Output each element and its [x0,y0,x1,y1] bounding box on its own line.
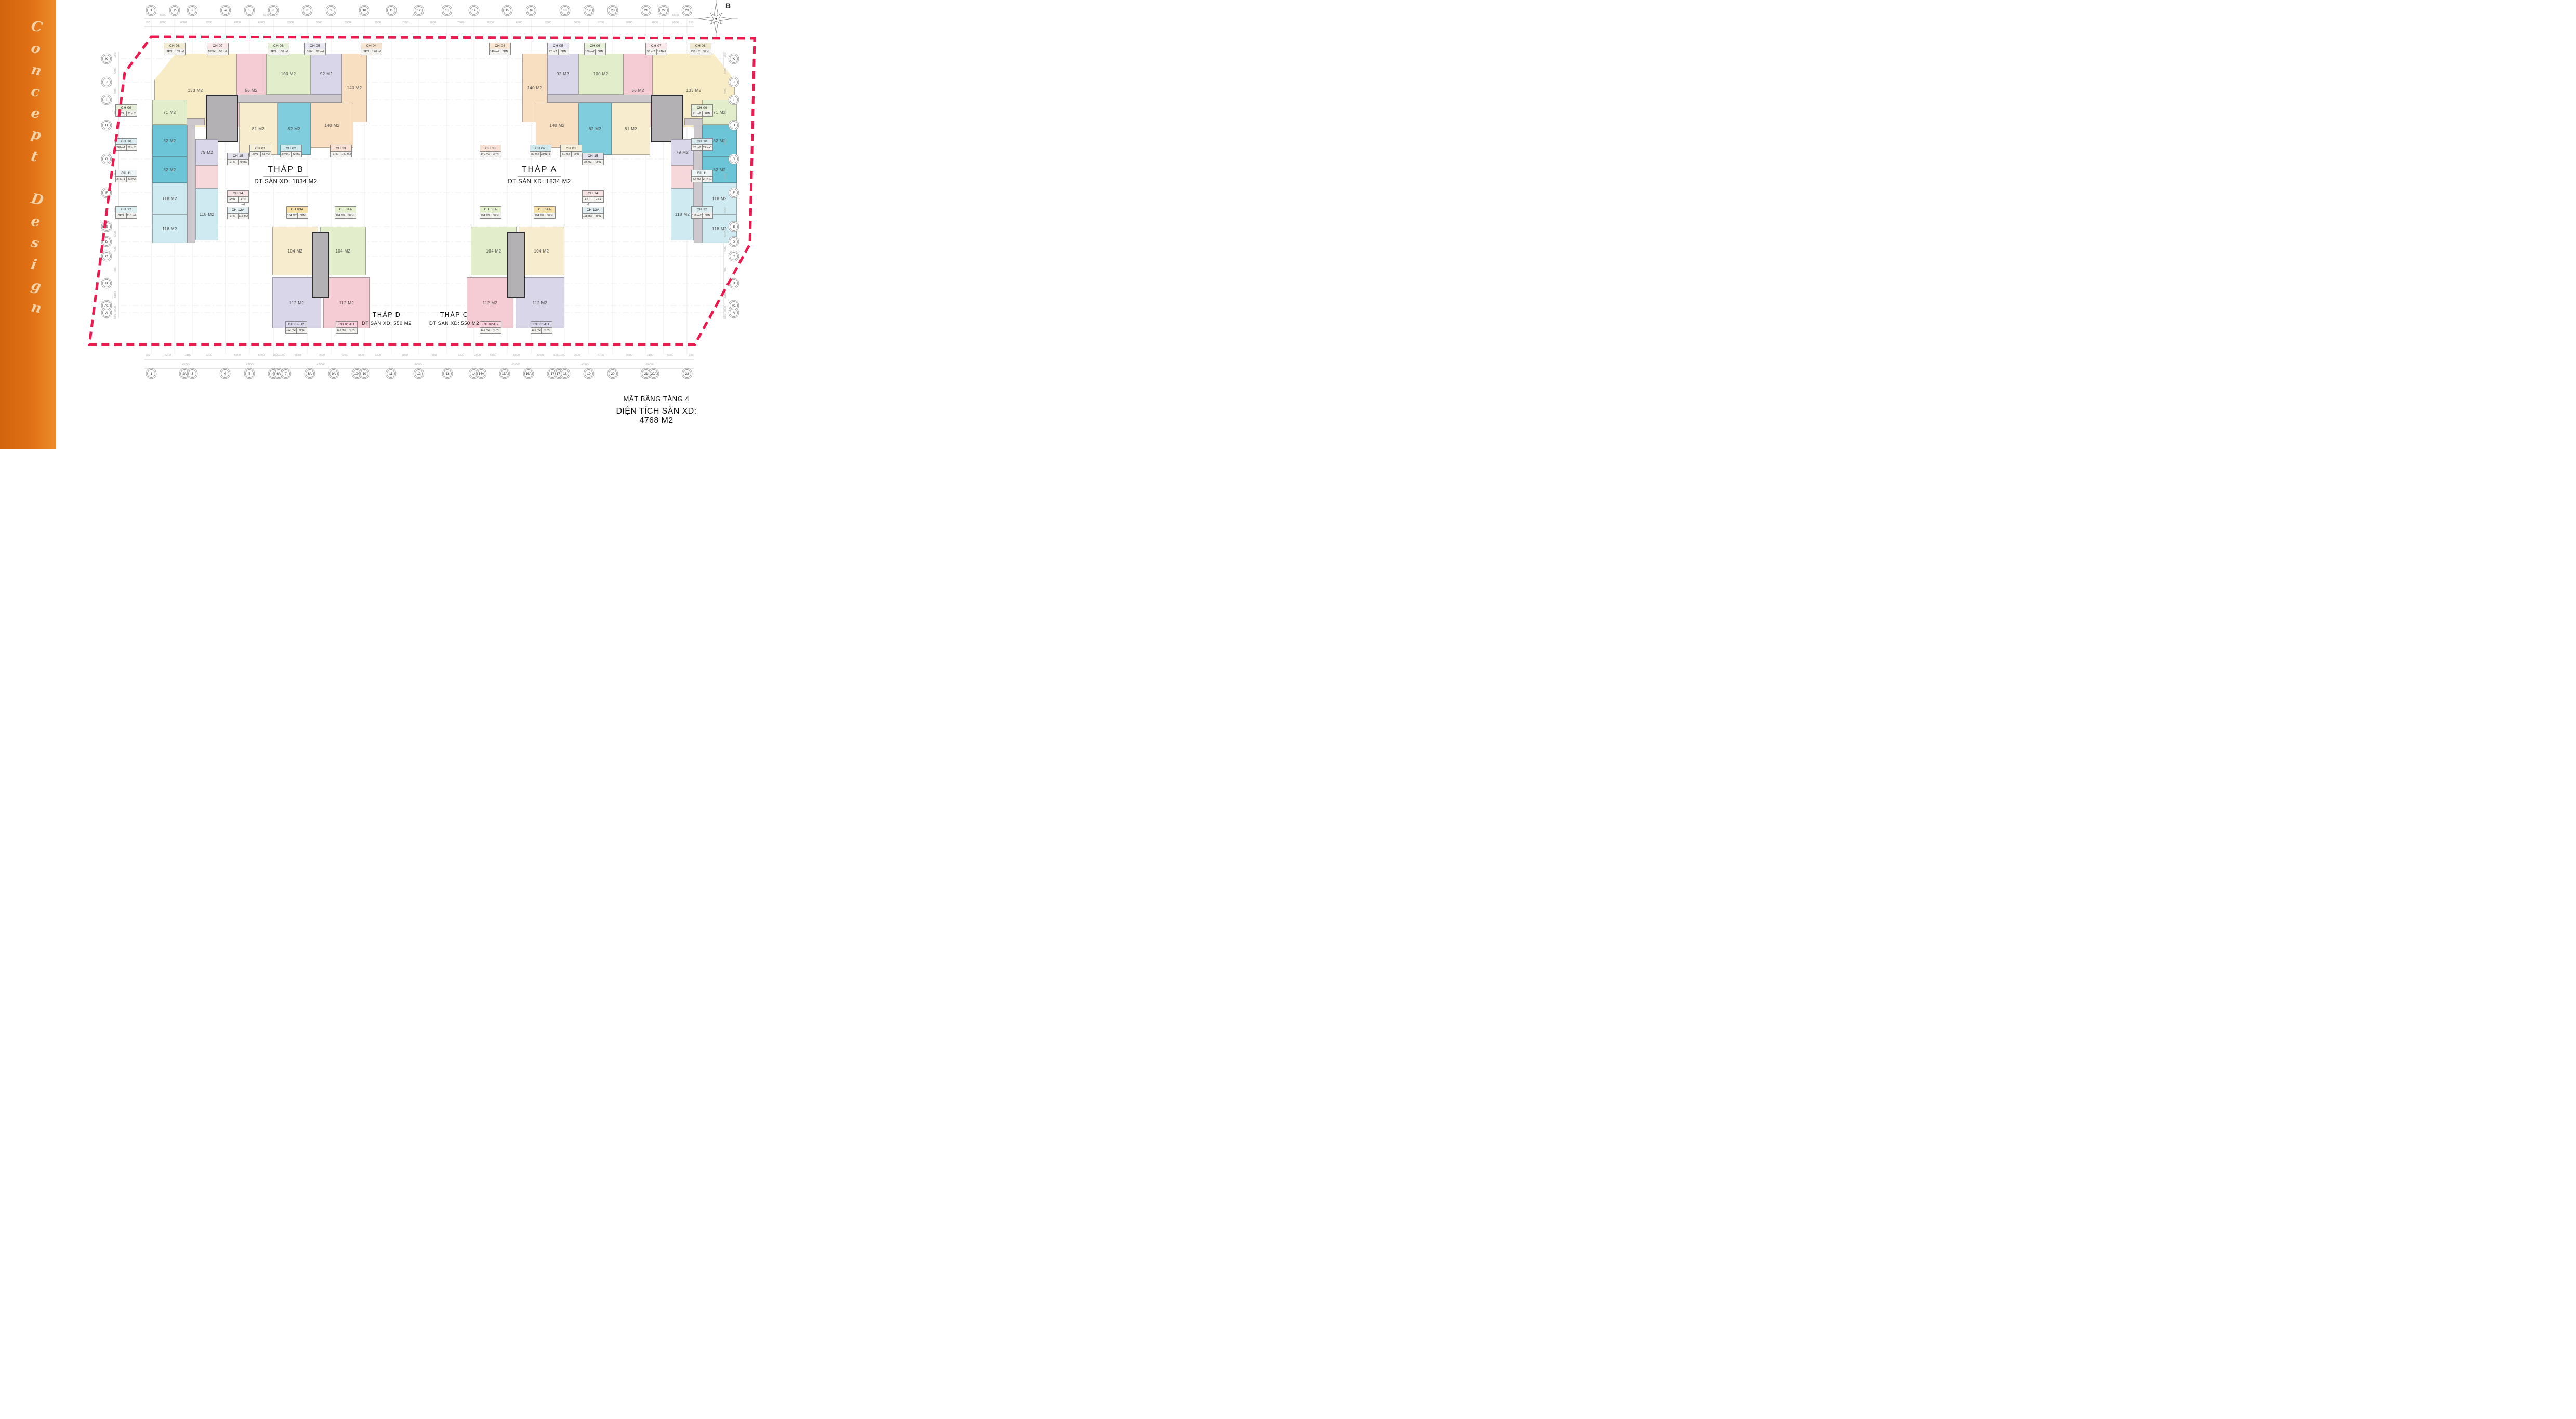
unit-code: CH 12A [228,207,248,214]
dimension-label: 150 [724,52,727,57]
unit-code: CH 03 [331,145,351,152]
unit-area-label: 104 M2 [287,249,302,254]
floor-plan-sheet: ConceptDesign B THÁP B DT SÀN XD: 1834 M… [0,0,815,449]
unit-code: CH 14 [228,191,248,197]
unit-cell: 3PN [593,214,604,219]
unit-block: 118 M2 [152,183,187,214]
unit-cell: 82 m2 [127,177,137,182]
unit-cell: 3PN [228,214,239,219]
unit-cell: 81 m2 [561,152,572,157]
unit-area-label: 118 M2 [200,212,215,217]
tower-d-name: THÁP D [373,311,401,319]
unit-code: CH 09 [116,105,137,111]
unit-block: 79 M2 [195,139,218,165]
unit-code: CH 09 [692,105,712,111]
dimension-label: 4800 [652,21,658,24]
dimension-label: 4200 [724,231,727,237]
unit-cell: 3PN [116,213,127,218]
unit-code: CH 06 [585,43,605,49]
unit-label-box: CH 01-D1112 m24PN [336,321,358,334]
unit-block: 82 M2 [152,125,187,157]
unit-block: 92 M2 [547,54,578,95]
unit-cell: 104 M2 [534,213,545,218]
tower-a-title: THÁP A DT SÀN XD: 1834 M2 [493,165,586,185]
unit-code: CH 10 [692,139,712,145]
unit-area-label: 81 M2 [252,127,265,131]
dimension-label: 7500 [114,267,117,273]
unit-cell: 2PN+1 [703,145,713,150]
core-block [206,95,238,142]
unit-cell: 118 m2 [692,213,703,218]
grid-bubble: 3 [188,369,196,378]
dimension-label: 9200 [626,354,632,357]
tower-b-title: THÁP B DT SÀN XD: 1834 M2 [239,165,333,185]
grid-bubble: 10 [360,369,368,378]
dimension-label: 9300 [287,21,294,24]
sheet-title-block: MẶT BẰNG TẦNG 4 DIỆN TÍCH SÀN XD: 4768 M… [607,395,706,426]
grid-bubble: J [730,78,738,86]
unit-label-box: CH 012PN81 m2 [249,145,271,157]
unit-code: CH 11 [116,170,137,177]
unit-code: CH 12A [583,207,603,214]
dimension-label: 6600 [516,21,522,24]
unit-cell: 100 m2 [585,49,596,55]
dimension-label: 6600 [316,21,322,24]
dimension-label: 2000 [474,354,481,357]
unit-label-box: CH 071PN+156 m2 [207,43,229,55]
grid-bubble: 14 [470,6,478,15]
unit-label-box: CH 04140 m23PN [489,43,511,55]
dimension-label: 7100 [724,110,727,116]
unit-code: CH 01-D1 [531,322,552,328]
unit-code: CH 02 [530,145,551,152]
grid-bubble: 10 [360,6,368,15]
unit-cell: 3PN [164,49,175,55]
unit-block: 140 M2 [536,103,578,148]
dimension-label: 2100 [185,354,191,357]
unit-area-label: 140 M2 [527,86,542,90]
dimension-total: 6500 [672,14,679,17]
core-block [507,232,525,298]
grid-bubble: 3 [188,6,196,15]
tower-c-name: THÁP C [440,311,469,319]
dimension-label: 9300 [724,173,727,179]
unit-block: 82 M2 [152,157,187,183]
unit-area-label: 56 M2 [245,88,257,93]
unit-area-label: 82 M2 [288,127,300,131]
unit-code: CH 05 [548,43,569,49]
tower-b-name: THÁP B [263,165,308,177]
grid-bubble: 20 [609,6,617,15]
unit-area-label: 140 M2 [347,86,362,90]
unit-cell: 71 m2 [692,111,703,116]
grid-bubble: 15 [503,6,511,15]
unit-label-box: CH 141PN+147,0 m2 [227,190,249,203]
dimension-label: 9200 [206,354,212,357]
unit-cell: 4PN [297,328,307,333]
dimension-total: 52800 [263,14,271,17]
grid-bubble: B [102,279,111,287]
unit-code: CH 03A [287,207,308,213]
unit-code: CH 14 [583,191,603,197]
dimension-label: 4800 [724,88,727,94]
unit-block: 71 M2 [152,100,187,125]
unit-block: 104 M2 [272,227,318,275]
unit-code: CH 03A [480,207,501,213]
unit-code: CH 10 [116,139,137,145]
dimension-label: 7300 [458,354,464,357]
unit-block: 118 M2 [195,188,218,240]
grid-bubble: F [102,189,111,197]
tower-b-area: DT SÀN XD: 1834 M2 [239,179,333,185]
dimension-total: 20700 [645,363,653,366]
unit-cell: 112 m2 [531,328,542,333]
unit-block: 81 M2 [612,103,650,155]
unit-cell: 1PN+1 [593,197,604,202]
dimension-label: 6550 [342,354,348,357]
unit-block: 92 M2 [311,54,342,95]
dimension-label: 150 [689,21,693,24]
dimension-label: 6100 [114,291,117,298]
grid-bubble: 11 [387,369,395,378]
unit-cell: 104 M2 [335,213,346,218]
unit-code: CH 02-D2 [480,322,501,328]
dimension-label: 4200 [114,231,117,237]
unit-area-label: 140 M2 [324,123,339,128]
unit-cell: 4PN [542,328,552,333]
unit-cell: 81 m2 [261,152,271,157]
dimension-label: 150 [689,354,693,357]
unit-label-box: CH 123PN118 m2 [115,206,137,219]
grid-bubble: 13 [443,369,452,378]
dimension-label: 9200 [165,354,171,357]
unit-cell: 82 m2 [692,145,703,150]
unit-area-label: 79 M2 [201,150,213,155]
grid-bubble: 6 [269,6,278,15]
dimension-label: 9300 [487,21,494,24]
unit-code: CH 07 [646,43,667,49]
grid-bubble: F [730,189,738,197]
unit-cell: 4PN [491,328,501,333]
unit-cell: 112 m2 [286,328,297,333]
dimension-total: 30000 [414,363,422,366]
unit-area-label: 82 M2 [163,168,176,173]
sheet-title: MẶT BẰNG TẦNG 4 [607,395,706,403]
unit-cell: 2PN [703,111,713,116]
unit-cell: 2PN+1 [281,152,292,157]
unit-area-label: 112 M2 [339,301,354,306]
tower-d-title: THÁP D DT SÀN XD: 550 M2 [362,310,412,326]
dimension-label: 6500 [160,21,166,24]
unit-label-box: CH 03A104 M23PN [480,206,501,219]
unit-label-box: CH 0756 m21PN+1 [645,43,667,55]
unit-cell: 140 m2 [490,49,500,55]
dimension-label: 1500 [559,354,565,357]
unit-cell: 56 m2 [218,49,229,55]
dimension-label: 4800 [180,21,187,24]
unit-label-box: CH 1182 m22PN+1 [691,170,713,182]
dimension-label: 9300 [545,21,551,24]
dimension-label: 6700 [598,21,604,24]
grid-bubble: C [102,252,111,260]
unit-area-label: 92 M2 [320,72,333,76]
dimension-label: 9300 [724,207,727,213]
unit-label-box: CH 112PN+182 m2 [115,170,137,182]
unit-cell: 79 m2 [583,160,593,165]
unit-area-label: 112 M2 [533,301,548,306]
grid-bubble: E [730,222,738,231]
unit-area-label: 104 M2 [486,249,501,254]
dimension-label: 4800 [114,88,117,94]
dimension-label: 9300 [724,139,727,145]
dimension-label: 6600 [258,354,265,357]
unit-cell: 2PN+1 [541,152,551,157]
unit-code: CH 08 [164,43,185,49]
unit-cell: 104 M2 [480,213,491,218]
dimension-label: 9200 [667,354,673,357]
core-block [651,95,683,142]
tower-d-area: DT SÀN XD: 550 M2 [362,321,412,326]
unit-cell: 133 m2 [175,49,186,55]
unit-cell: 133 m2 [690,49,701,55]
unit-code: CH 15 [228,153,248,160]
unit-code: CH 05 [305,43,325,49]
unit-label-box: CH 092PN71 m2 [115,104,137,117]
unit-label-box: CH 12A3PN118 m2 [227,207,249,219]
unit-cell: 4PN [347,328,358,333]
dimension-label: 1500 [273,354,279,357]
unit-label-box: CH 033PN140 m2 [330,145,352,157]
dimension-label: 9200 [206,21,212,24]
unit-label-box: CH 02-D2112 m24PN [285,321,307,334]
dimension-label: 7850 [402,354,408,357]
dimension-label: 7300 [375,354,381,357]
unit-cell: 3PN [596,49,606,55]
unit-area-label: 104 M2 [335,249,350,254]
unit-label-box: CH 152PN79 m2 [227,153,249,165]
dimension-total: 14600 [246,363,254,366]
unit-block: 100 M2 [578,54,623,95]
grid-bubble: G [102,155,111,163]
unit-label-box: CH 0592 m23PN [547,43,569,55]
unit-cell: 104 M2 [287,213,298,218]
grid-bubble: 1 [147,369,155,378]
unit-label-box: CH 12A118 m23PN [582,207,604,219]
dimension-label: 6550 [490,354,496,357]
unit-label-box: CH 0181 m22PN [560,145,582,157]
unit-cell: 92 m2 [548,49,559,55]
unit-cell: 92 m2 [315,49,326,55]
dimension-label: 6500 [114,68,117,74]
grid-bubble: 9A [329,369,338,378]
unit-area-label: 92 M2 [557,72,569,76]
grid-bubble: 18 [561,369,569,378]
unit-block [236,95,342,103]
dimension-label: 6600 [574,21,580,24]
unit-label-box: CH 043PN140 m2 [361,43,382,55]
dimension-total: 14600 [581,363,589,366]
grid-bubble: 11 [387,6,395,15]
dimension-label: 6700 [234,21,241,24]
unit-label-box: CH 04A104 M23PN [534,206,556,219]
unit-area-label: 118 M2 [712,196,727,201]
dimension-label: 6700 [598,354,604,357]
unit-area-label: 71 M2 [163,110,176,115]
grid-bubble: 2A [180,369,189,378]
unit-cell: 3PN [268,49,279,55]
unit-cell: 47,0 m2 [583,197,593,202]
grid-bubble: 18 [561,6,569,15]
grid-bubble: 4 [221,369,229,378]
unit-cell: 3PN [701,49,711,55]
unit-cell: 1PN+1 [207,49,218,55]
dimension-label: 150 [114,314,117,319]
grid-bubble: B [730,279,738,287]
grid-bubble: 19 [585,6,593,15]
dimension-label: 7650 [430,21,436,24]
unit-cell: 3PN [500,49,511,55]
grid-bubble: A [730,309,738,317]
dimension-label: 2000 [358,354,364,357]
unit-label-box: CH 022PN+182 m2 [280,145,302,157]
grid-bubble: 23 [683,369,691,378]
dimension-label: 6600 [574,354,580,357]
dimension-total: 6500 [160,14,166,17]
unit-code: CH 01-D1 [336,322,357,328]
grid-bubble: H [730,121,738,129]
unit-cell: 1PN+1 [228,197,239,202]
grid-bubble: K [102,55,111,63]
grid-bubble: K [730,55,738,63]
unit-cell: 3PN [491,152,501,157]
unit-code: CH 15 [583,153,603,160]
unit-cell: 112 m2 [336,328,347,333]
grid-bubble: 12 [415,369,423,378]
grid-bubble: 13 [443,6,451,15]
unit-label-box: CH 053PN92 m2 [304,43,326,55]
unit-cell: 2PN [572,152,582,157]
unit-code: CH 07 [207,43,228,49]
grid-bubble: 22A [650,369,658,378]
unit-label-box: CH 12118 m23PN [691,206,713,219]
grid-bubble: 1 [147,6,155,15]
unit-cell: 71 m2 [127,111,137,116]
unit-label-box: CH 1447,0 m21PN+1 [582,190,604,203]
unit-block: 104 M2 [519,227,564,275]
unit-label-box: CH 0971 m22PN [691,104,713,117]
unit-area-label: 112 M2 [483,301,498,306]
dimension-label: 2100 [647,354,653,357]
unit-label-box: CH 063PN100 m2 [268,43,289,55]
grid-bubble: 4 [221,6,230,15]
unit-cell: 3PN [298,213,308,218]
dimension-label: 6700 [234,354,241,357]
grid-bubble: I [102,96,111,104]
unit-area-label: 104 M2 [534,249,549,254]
unit-code: CH 01 [250,145,271,152]
unit-cell: 3PN [346,213,356,218]
sheet-area: DIỆN TÍCH SÀN XD: 4768 M2 [607,407,706,426]
unit-code: CH 08 [690,43,711,49]
unit-area-label: 81 M2 [625,127,637,131]
unit-area-label: 56 M2 [631,88,644,93]
unit-label-box: CH 102PN+182 m2 [115,138,137,151]
grid-bubble: 5 [245,369,254,378]
unit-cell: 3PN [703,213,713,218]
grid-bubble: D [730,237,738,246]
unit-cell: 140 m2 [341,152,352,157]
unit-area-label: 118 M2 [675,212,690,217]
dimension-label: 6600 [258,21,265,24]
unit-cell: 3PN [361,49,372,55]
unit-cell: 140 m2 [480,152,491,157]
unit-block [195,165,218,188]
dimension-total: 24000 [316,363,324,366]
unit-area-label: 100 M2 [593,72,608,76]
dimension-label: 4000 [114,246,117,252]
unit-code: CH 04A [534,207,555,213]
grid-bubble: 23 [683,6,691,15]
tower-a-area: DT SÀN XD: 1834 M2 [493,179,586,185]
grid-bubble: 12 [415,6,423,15]
dimension-total: 20700 [182,363,190,366]
dimension-label: 6600 [319,354,325,357]
dimension-label: 6550 [537,354,544,357]
unit-code: CH 01 [561,145,582,152]
unit-area-label: 118 M2 [712,227,727,231]
dimension-label: 150 [145,21,150,24]
unit-code: CH 02-D2 [286,322,307,328]
unit-label-box: CH 083PN133 m2 [164,43,186,55]
unit-cell: 100 m2 [279,49,289,55]
unit-cell: 2PN+1 [116,177,127,182]
unit-cell: 2PN+1 [116,145,127,150]
unit-label-box: CH 03140 m23PN [480,145,501,157]
unit-cell: 82 m2 [692,177,703,182]
tower-c-area: DT SÀN XD: 550 M2 [429,321,479,326]
unit-cell: 3PN [305,49,315,55]
grid-bubble: E [102,222,111,231]
unit-code: CH 06 [268,43,289,49]
unit-cell: 118 m2 [239,214,249,219]
unit-label-box: CH 0282 m22PN+1 [530,145,551,157]
unit-label-box: CH 02-D2112 m24PN [480,321,501,334]
grid-bubble: 22 [659,6,668,15]
unit-code: CH 04A [335,207,356,213]
unit-block: 79 M2 [671,139,694,165]
unit-code: CH 04 [490,43,510,49]
tower-c-title: THÁP C DT SÀN XD: 550 M2 [429,310,479,326]
unit-cell: 3PN [559,49,569,55]
dimension-total: 24000 [511,363,519,366]
grid-bubble: A [102,309,111,317]
grid-bubble: 21 [642,369,650,378]
dimension-label: 9200 [626,21,632,24]
dimension-label: 2000 [553,354,559,357]
unit-cell: 3PN [331,152,341,157]
dimension-label: 150 [114,52,117,57]
unit-cell: 82 m2 [530,152,541,157]
dimension-label: 9300 [345,21,351,24]
dimension-label: 6550 [295,354,301,357]
compass-icon: B [694,0,738,37]
dimension-label: 4000 [724,246,727,252]
grid-bubble: 2 [170,6,179,15]
grid-bubble: 7 [282,369,290,378]
unit-cell: 2PN [250,152,261,157]
unit-block: 140 M2 [311,103,353,148]
dimension-label: 2000 [114,306,117,312]
